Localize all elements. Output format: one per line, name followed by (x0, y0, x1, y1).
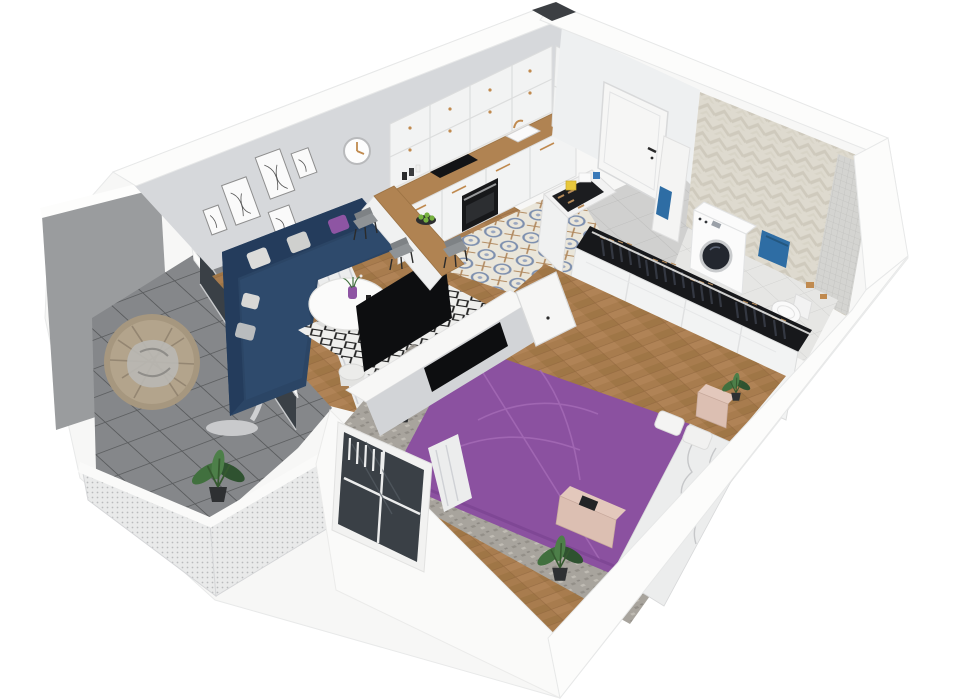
flower-vase (348, 286, 357, 299)
toilet-paper-holder (806, 282, 814, 288)
shower-fitting (820, 294, 827, 299)
wall-clock (344, 138, 370, 164)
floorplan-image (0, 0, 958, 700)
apartment-render (0, 0, 958, 700)
